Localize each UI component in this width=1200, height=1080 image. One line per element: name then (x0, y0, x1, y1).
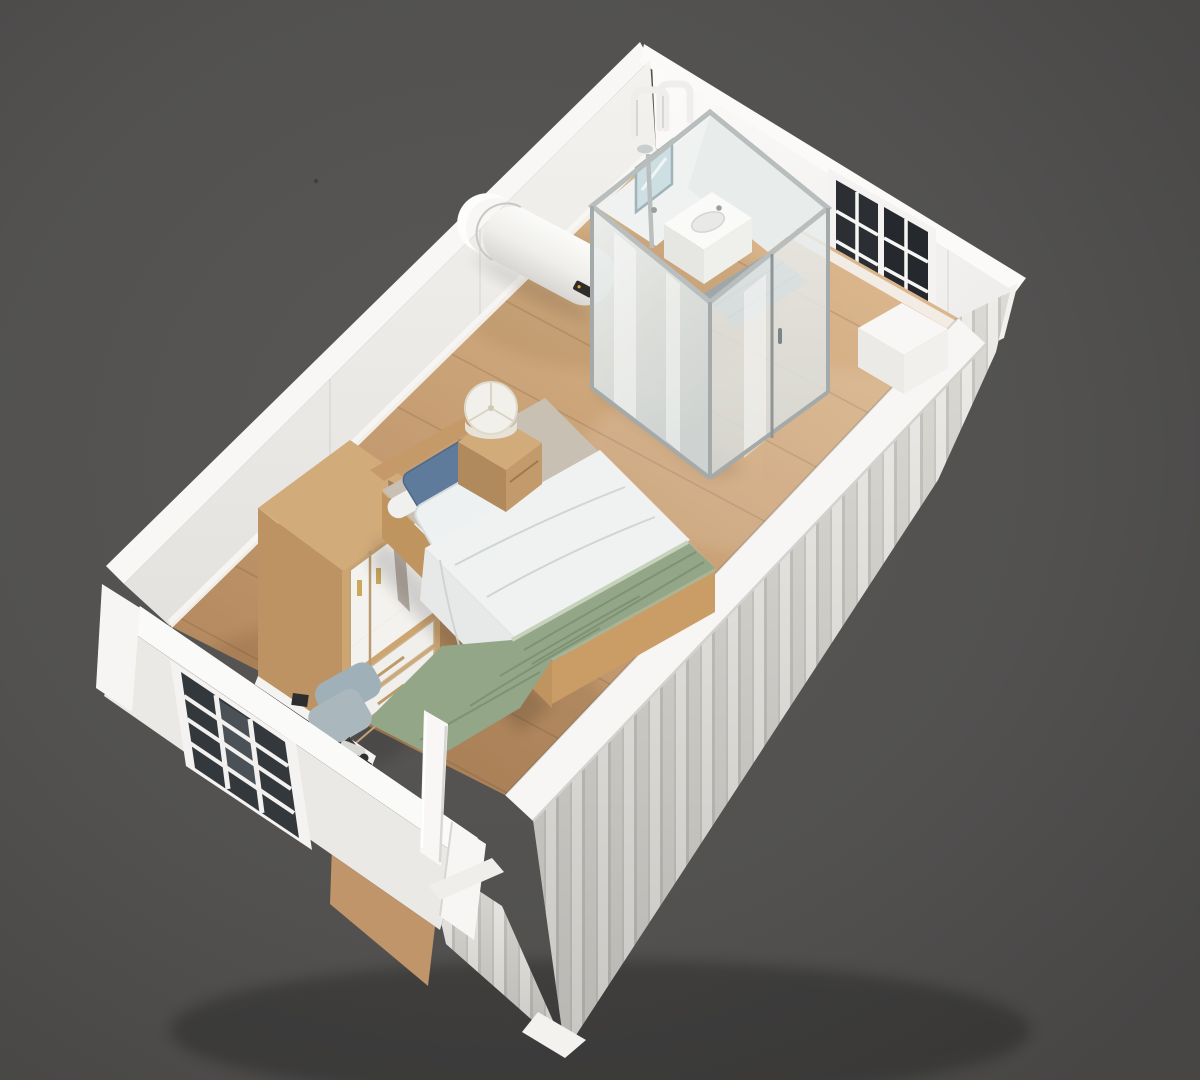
lamp-finial (488, 405, 494, 411)
sink-faucet (716, 205, 722, 211)
wardrobe-handle (357, 580, 362, 596)
scene-render: Isometric 3D cutaway render of a white c… (0, 0, 1200, 1080)
shower-valve (651, 207, 657, 213)
desk-item (291, 693, 309, 707)
render-stage: Isometric 3D cutaway render of a white c… (0, 0, 1200, 1080)
table-lamp (465, 382, 517, 439)
pod-door-handle (778, 328, 782, 344)
backdrop-speck (314, 179, 318, 183)
shower-head (637, 145, 653, 154)
